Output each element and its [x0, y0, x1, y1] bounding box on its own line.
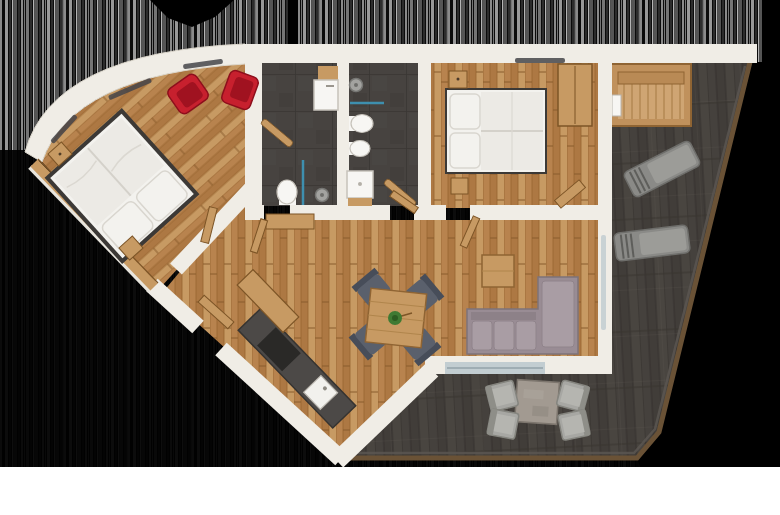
shower-head-2: [350, 79, 363, 92]
background-black-slit: [288, 0, 298, 46]
bed-2-pillow-bottom: [450, 133, 480, 168]
sauna-bench: [618, 72, 684, 84]
shower-head-1: [316, 189, 329, 202]
sauna-daybed: [611, 64, 691, 126]
wall-console: [266, 214, 314, 229]
bed-2-pillow-top: [450, 94, 480, 129]
bathroom-1-toilet: [277, 180, 297, 205]
bathroom-1-sink: [314, 80, 338, 110]
background-white-bottom: [0, 467, 780, 515]
east-sliding-window: [601, 235, 606, 330]
floorplan-stage: [0, 0, 780, 515]
sofa-seat-2: [494, 321, 514, 350]
sauna-step: [612, 95, 621, 116]
floorplan-render: [0, 0, 780, 515]
bathroom-2-cabinet: [348, 198, 372, 206]
bathroom-2-right-wall: [418, 62, 431, 220]
double-bed-2: [445, 88, 547, 174]
bedroom-2-nightstand-2: [451, 178, 468, 194]
top-exterior-wall: [243, 44, 757, 63]
south-wall: [425, 356, 612, 374]
bedroom-2-window: [515, 58, 565, 63]
slider-head: [445, 356, 545, 362]
sofa-seat-3: [516, 321, 536, 350]
bathroom-2-bidet: [349, 141, 370, 157]
bathroom-2-toilet: [349, 115, 373, 133]
vanity-counter: [318, 66, 338, 81]
stone-table: [515, 380, 560, 425]
sofa-chaise-cushion: [542, 281, 574, 347]
sofa-back: [471, 312, 536, 320]
sofa-seat-1: [472, 321, 492, 350]
